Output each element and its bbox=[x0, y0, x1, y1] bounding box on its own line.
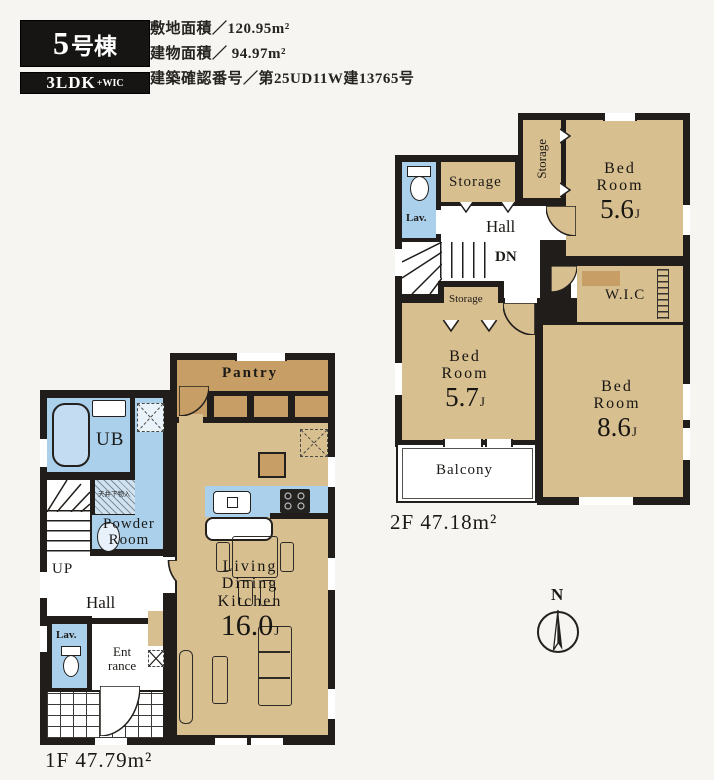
window bbox=[328, 556, 335, 592]
wic-shelf bbox=[582, 271, 620, 286]
entrance-label: Ent rance bbox=[108, 645, 136, 672]
north-label: N bbox=[551, 586, 563, 604]
folding-door-icon bbox=[458, 202, 474, 213]
folding-door-icon bbox=[500, 202, 516, 213]
side-table-icon bbox=[212, 656, 228, 704]
floor1-area-label: 1F 47.79m² bbox=[45, 748, 152, 773]
hall-1f-label: Hall bbox=[86, 594, 115, 612]
tv-board-icon bbox=[179, 650, 193, 724]
toilet-icon bbox=[410, 176, 429, 201]
permit-number-text: 建築確認番号／第25UD11W建13765号 bbox=[150, 67, 414, 88]
window bbox=[443, 439, 483, 447]
shoe-box-icon bbox=[148, 650, 164, 667]
washbasin-icon bbox=[92, 400, 126, 417]
bedroom-8-6-label: Bed Room 8.6J bbox=[572, 378, 662, 442]
unit-suffix: 号棟 bbox=[71, 27, 117, 61]
ub-label: UB bbox=[96, 430, 124, 450]
window bbox=[235, 353, 287, 361]
pantry-shelf-line bbox=[205, 391, 328, 396]
unit-number: 5 bbox=[53, 25, 69, 62]
door-arc-pantry bbox=[179, 386, 209, 416]
pantry-label: Pantry bbox=[222, 366, 278, 382]
pantry-divider bbox=[247, 396, 254, 417]
folding-door-icon bbox=[442, 320, 460, 332]
lav-1f-label: Lav. bbox=[56, 630, 76, 642]
bathtub-icon bbox=[52, 403, 90, 467]
window bbox=[40, 437, 47, 469]
bedroom-5-7-label: Bed Room 5.7J bbox=[420, 348, 510, 412]
door-arc-bedroom-5-7 bbox=[503, 303, 535, 335]
ceiling-storage-label: 天井下物入 bbox=[98, 492, 131, 499]
stairs-winder-lines bbox=[47, 480, 90, 512]
layout-suffix: +WIC bbox=[97, 78, 124, 89]
door-gap bbox=[505, 296, 537, 303]
door-gap-lav-2f bbox=[436, 210, 442, 234]
stairs-up bbox=[47, 510, 90, 562]
sofa-cushion-line bbox=[258, 651, 290, 653]
storage-top-label: Storage bbox=[449, 175, 502, 191]
stairs-down bbox=[440, 242, 492, 278]
up-label: UP bbox=[52, 562, 73, 578]
balcony-label: Balcony bbox=[436, 463, 493, 479]
floor2-area-label: 2F 47.18m² bbox=[390, 510, 497, 535]
faucet-icon bbox=[227, 497, 238, 508]
door-arc-wic bbox=[551, 266, 577, 292]
toilet-icon bbox=[63, 655, 79, 677]
bedroom-5-6-label: Bed Room 5.6J bbox=[575, 160, 665, 224]
refrigerator-space-icon bbox=[300, 429, 328, 457]
ldk-label: Living Dining Kitchen 16.0J bbox=[205, 558, 295, 642]
site-area-text: 敷地面積／120.95m² bbox=[150, 17, 290, 38]
washer-space-icon bbox=[137, 403, 164, 432]
down-label: DN bbox=[495, 250, 517, 266]
window bbox=[328, 687, 335, 721]
layout-main: 3LDK bbox=[46, 73, 95, 93]
shoe-cabinet bbox=[148, 611, 163, 646]
window bbox=[683, 382, 690, 422]
ladder-icon bbox=[657, 269, 669, 319]
window bbox=[213, 738, 249, 745]
window bbox=[485, 439, 513, 447]
folding-door-icon bbox=[560, 128, 571, 144]
unit-badge: 5 号棟 bbox=[20, 20, 150, 67]
layout-badge: 3LDK +WIC bbox=[20, 72, 150, 94]
lav-2f-label: Lav. bbox=[406, 213, 426, 225]
window bbox=[683, 426, 690, 462]
entrance-door-arc bbox=[100, 686, 140, 736]
window bbox=[395, 361, 402, 397]
storage-side-label: Storage bbox=[535, 137, 549, 181]
window bbox=[395, 247, 402, 278]
window bbox=[249, 738, 285, 745]
folding-door-icon bbox=[480, 320, 498, 332]
door-arc-bedroom-5-6 bbox=[546, 206, 576, 236]
stairs-winder-lines bbox=[402, 242, 442, 294]
window bbox=[328, 455, 335, 489]
stove-icon bbox=[280, 489, 310, 513]
window bbox=[683, 203, 690, 237]
floorplan-flyer: 5 号棟 3LDK +WIC 敷地面積／120.95m² 建物面積／ 94.97… bbox=[0, 0, 714, 780]
wall-stub bbox=[40, 616, 92, 624]
counter-wall bbox=[270, 513, 328, 519]
pantry-divider bbox=[288, 396, 295, 417]
folding-door-icon bbox=[560, 182, 571, 198]
storage-low-label: Storage bbox=[449, 294, 483, 306]
hall-2f-label: Hall bbox=[486, 218, 515, 236]
window bbox=[603, 113, 637, 121]
sofa-cushion-line bbox=[258, 677, 290, 679]
window bbox=[40, 624, 47, 654]
window bbox=[577, 497, 635, 505]
refrigerator-icon bbox=[258, 452, 286, 478]
wic-label: W.I.C bbox=[605, 288, 645, 304]
compass-icon bbox=[536, 606, 580, 656]
window bbox=[40, 570, 47, 600]
powder-room-label: Powder Room bbox=[103, 517, 155, 549]
porch-step bbox=[95, 738, 127, 745]
building-area-text: 建物面積／ 94.97m² bbox=[150, 42, 286, 63]
